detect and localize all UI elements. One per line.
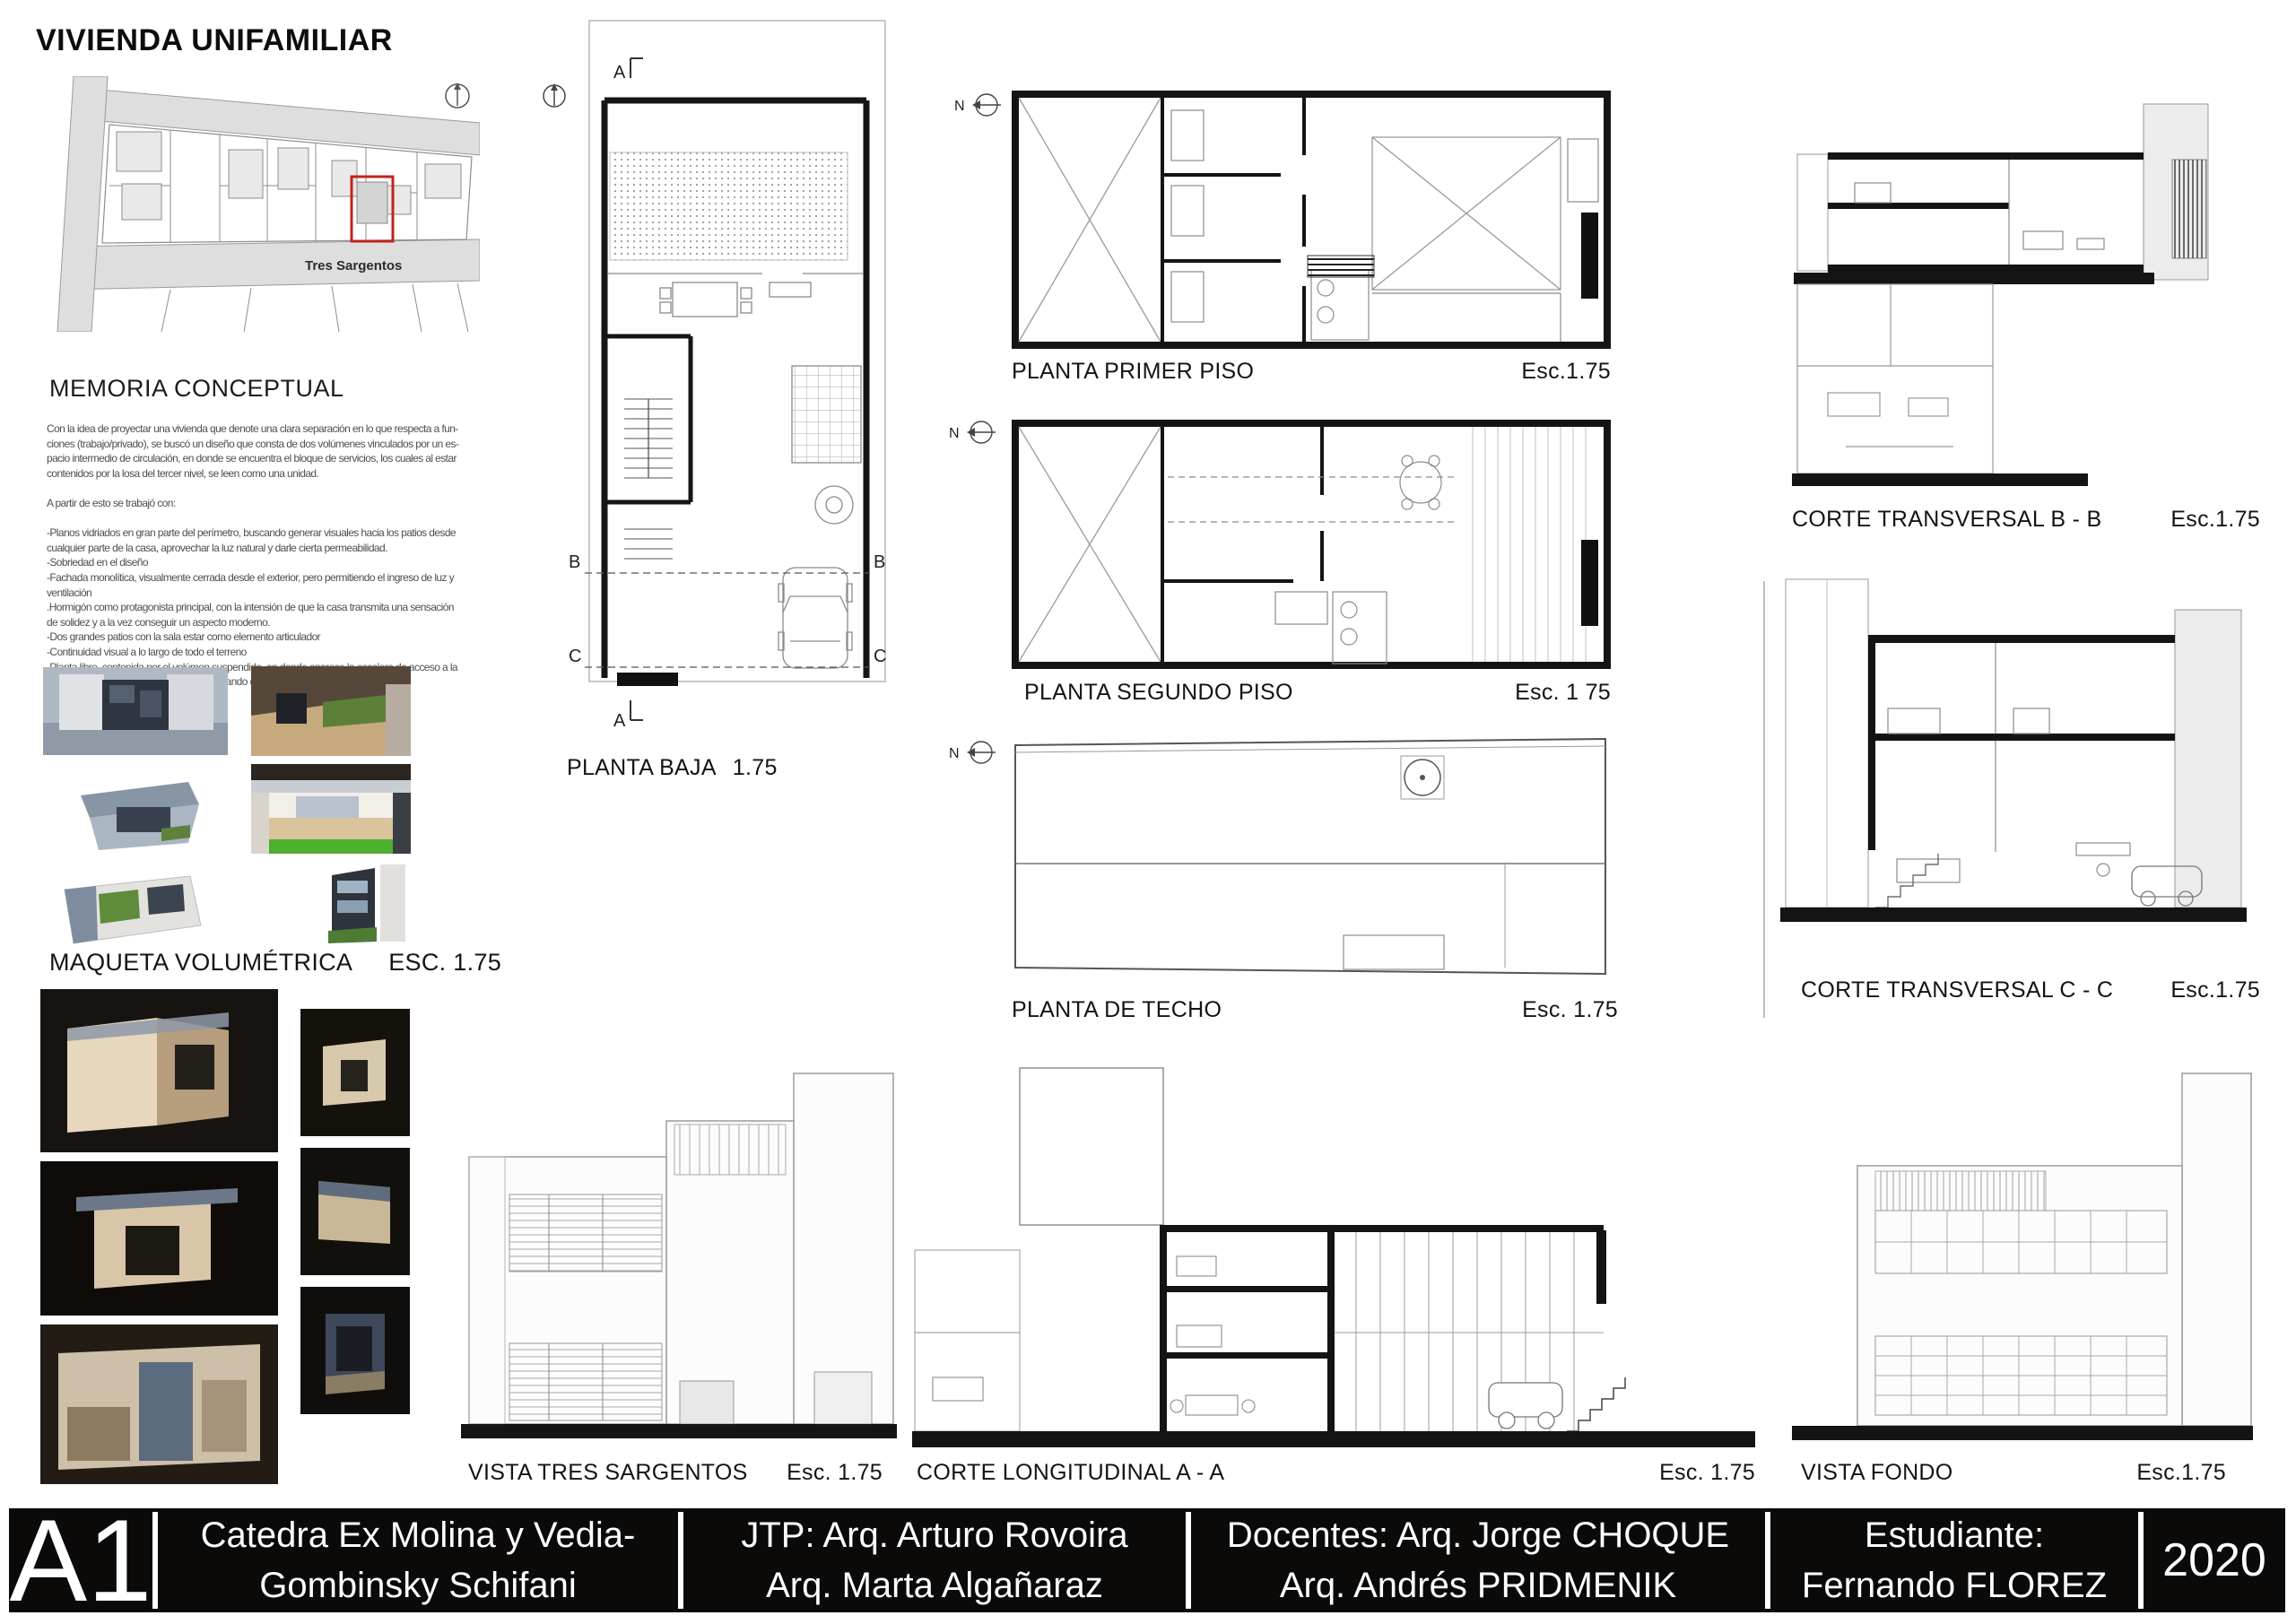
vista-fondo-label: VISTA FONDO	[1801, 1460, 1953, 1486]
catedra-cell: Catedra Ex Molina y Vedia- Gombinsky Sch…	[158, 1508, 678, 1612]
memoria-line: .Hormigón como protagonista principal, c…	[47, 600, 549, 615]
ground-bar	[1794, 273, 2154, 284]
planta-primer-label: PLANTA PRIMER PISO	[1012, 359, 1254, 385]
memoria-line: -Dos grandes patios con la sala estar co…	[47, 630, 549, 645]
site-lot-building	[357, 182, 387, 223]
planta-techo-scale: Esc. 1.75	[1522, 997, 1618, 1023]
maqueta-photo-2	[40, 1161, 278, 1316]
vista-tres-sargentos-label: VISTA TRES SARGENTOS	[468, 1460, 748, 1486]
ground-bar	[1780, 908, 2247, 922]
roof-outline	[1015, 739, 1605, 974]
estudiante-cell: Estudiante: Fernando FLOREZ	[1770, 1508, 2138, 1612]
tall-volume	[794, 1073, 893, 1424]
party-wall-right	[2175, 610, 2241, 908]
entry-opening	[680, 1381, 734, 1424]
svg-text:N: N	[949, 426, 960, 441]
vista-tres-sargentos-drawing	[459, 1067, 899, 1448]
marker-c-right: C	[874, 647, 886, 666]
roof-access	[1344, 935, 1444, 969]
memoria-line: Con la idea de proyectar una vivienda qu…	[47, 421, 549, 437]
wall-bar	[1581, 540, 1598, 626]
dark-striped-block	[1308, 256, 1374, 277]
memoria-line: de solidez y a la vez conseguir un aspec…	[47, 615, 549, 630]
render-patio-interior	[251, 666, 411, 756]
planta-baja-label: PLANTA BAJA	[567, 755, 717, 781]
render-cutaway-axon	[54, 764, 224, 859]
svg-text:N: N	[949, 746, 960, 761]
maqueta-photo-1	[40, 989, 278, 1152]
memoria-line: A partir de esto se trabajó con:	[47, 496, 549, 511]
marker-c-left: C	[569, 647, 581, 666]
memoria-heading: MEMORIA CONCEPTUAL	[49, 375, 344, 403]
memoria-line	[47, 481, 549, 496]
ground-bar	[912, 1431, 1755, 1447]
party-wall-left	[1797, 154, 1828, 271]
entry-ramp	[617, 673, 678, 686]
estudiante-line-1: Estudiante:	[1865, 1510, 2044, 1560]
jtp-cell: JTP: Arq. Arturo Rovoira Arq. Marta Alga…	[683, 1508, 1186, 1612]
memoria-text: Con la idea de proyectar una vivienda qu…	[47, 421, 549, 690]
section-lines	[585, 573, 870, 667]
memoria-line: pacio intermedio de circulación, en dond…	[47, 451, 549, 466]
marker-a-top: A	[613, 63, 626, 83]
memoria-line: -Planos vidriados en gran parte del perí…	[47, 525, 549, 541]
estudiante-line-2: Fernando FLOREZ	[1802, 1560, 2107, 1611]
planta-primer-piso-drawing	[1006, 85, 1616, 354]
corte-bb-scale: Esc.1.75	[2170, 507, 2260, 533]
slabs	[1868, 635, 2175, 850]
jtp-line-1: JTP: Arq. Arturo Rovoira	[741, 1510, 1127, 1560]
planta-techo-drawing	[1006, 731, 1616, 982]
slabs	[1828, 152, 2144, 273]
street-label: Tres Sargentos	[305, 258, 402, 274]
tall-volume	[2182, 1073, 2251, 1426]
planta-primer-scale: Esc.1.75	[1521, 359, 1611, 385]
docentes-line-1: Docentes: Arq. Jorge CHOQUE	[1227, 1510, 1729, 1560]
marker-a-bottom: A	[613, 711, 626, 731]
lower-parcel-lines	[161, 283, 468, 332]
corte-aa-drawing	[908, 1064, 1760, 1449]
presentation-board: VIVIENDA UNIFAMILIAR	[0, 0, 2296, 1624]
planta-segundo-piso-drawing	[1006, 414, 1616, 674]
stair	[624, 399, 673, 559]
planta-techo-label: PLANTA DE TECHO	[1012, 997, 1222, 1023]
render-courtyard-axon	[47, 863, 210, 949]
front-patio-hatch	[610, 152, 848, 260]
lower-level	[1797, 284, 1993, 473]
memoria-line: -Continuidad visual a lo largo de todo e…	[47, 645, 549, 660]
planta-baja-drawing: A A B B C C	[538, 13, 897, 735]
vista-fondo-drawing	[1790, 1069, 2257, 1446]
window-band-lower	[509, 1343, 662, 1420]
memoria-line: ventilación	[47, 586, 549, 601]
vista-tres-sargentos-scale: Esc. 1.75	[787, 1460, 883, 1486]
louver-hatch	[2172, 160, 2206, 258]
maqueta-photo-6	[300, 1287, 410, 1414]
docentes-cell: Docentes: Arq. Jorge CHOQUE Arq. Andrés …	[1191, 1508, 1765, 1612]
stair	[1567, 1377, 1625, 1431]
compass-icon	[446, 83, 469, 108]
memoria-line: contenidos por la losa del tercer nivel,…	[47, 466, 549, 482]
north-compass-icon	[544, 83, 565, 107]
interior-lines	[1875, 643, 2130, 908]
skylight-center	[1420, 775, 1425, 780]
maqueta-photo-4	[300, 1009, 410, 1136]
catedra-line-1: Catedra Ex Molina y Vedia-	[201, 1510, 636, 1560]
column-divider	[1763, 581, 1765, 1018]
memoria-line: -Fachada monolítica, visualmente cerrada…	[47, 570, 549, 586]
render-exterior-facade	[43, 667, 228, 755]
left-wing	[915, 1250, 1020, 1431]
catedra-line-2: Gombinsky Schifani	[259, 1560, 576, 1611]
clerestory-strip	[674, 1125, 786, 1175]
corte-bb-drawing	[1792, 97, 2222, 491]
memoria-line: -Sobriedad en el diseño	[47, 555, 549, 570]
room-furniture	[1170, 1256, 1255, 1415]
vista-fondo-scale: Esc.1.75	[2136, 1460, 2226, 1486]
window-band-upper	[509, 1194, 662, 1272]
garage-opening	[814, 1372, 872, 1424]
render-living-interior	[251, 764, 411, 854]
north-arrow-icon: N	[952, 90, 1006, 120]
maqueta-photo-3	[40, 1324, 278, 1484]
site-plan-drawing: Tres Sargentos	[36, 76, 480, 332]
corte-cc-label: CORTE TRANSVERSAL C - C	[1801, 977, 2113, 1003]
maqueta-heading: MAQUETA VOLUMÉTRICA	[49, 949, 352, 977]
wall-bar	[1581, 213, 1598, 299]
lower-ground-bar	[1792, 473, 2088, 486]
corte-cc-scale: Esc.1.75	[2170, 977, 2260, 1003]
maqueta-scale: ESC. 1.75	[388, 949, 501, 977]
year-cell: 2020	[2144, 1508, 2285, 1612]
planta-baja-scale: 1.75	[733, 755, 778, 781]
sheet-number: A1	[9, 1508, 152, 1612]
maqueta-photo-5	[300, 1148, 410, 1275]
property-outline	[589, 21, 885, 682]
title-block: A1 Catedra Ex Molina y Vedia- Gombinsky …	[9, 1508, 2285, 1612]
corte-aa-scale: Esc. 1.75	[1659, 1460, 1755, 1486]
north-arrow-icon: N	[947, 737, 1001, 768]
corte-bb-label: CORTE TRANSVERSAL B - B	[1792, 507, 2101, 533]
marker-b-left: B	[569, 552, 580, 572]
exterior-walls	[1015, 423, 1607, 665]
docentes-line-2: Arq. Andrés PRIDMENIK	[1280, 1560, 1676, 1611]
car	[778, 568, 852, 668]
jtp-line-2: Arq. Marta Algañaraz	[766, 1560, 1103, 1611]
louver-band	[1875, 1171, 2046, 1211]
planta-segundo-scale: Esc. 1 75	[1515, 680, 1611, 706]
ground-bar	[461, 1424, 897, 1438]
glazing-grid	[1335, 1232, 1604, 1431]
svg-text:N: N	[954, 99, 965, 114]
tall-volume	[1020, 1068, 1163, 1225]
corte-cc-drawing	[1780, 574, 2247, 960]
render-rear-volume	[305, 859, 411, 945]
memoria-line: ciones (trabajo/privado), se buscó un di…	[47, 437, 549, 452]
corte-aa-label: CORTE LONGITUDINAL A - A	[917, 1460, 1224, 1486]
interior-lines	[1855, 160, 2104, 265]
marker-b-right: B	[874, 552, 885, 572]
memoria-line	[47, 511, 549, 526]
north-arrow-icon: N	[947, 417, 1001, 447]
memoria-line: cualquier parte de la casa, aprovechar l…	[47, 541, 549, 556]
ground-bar	[1792, 1426, 2253, 1440]
page-title: VIVIENDA UNIFAMILIAR	[36, 23, 393, 58]
planta-segundo-label: PLANTA SEGUNDO PISO	[1024, 680, 1293, 706]
